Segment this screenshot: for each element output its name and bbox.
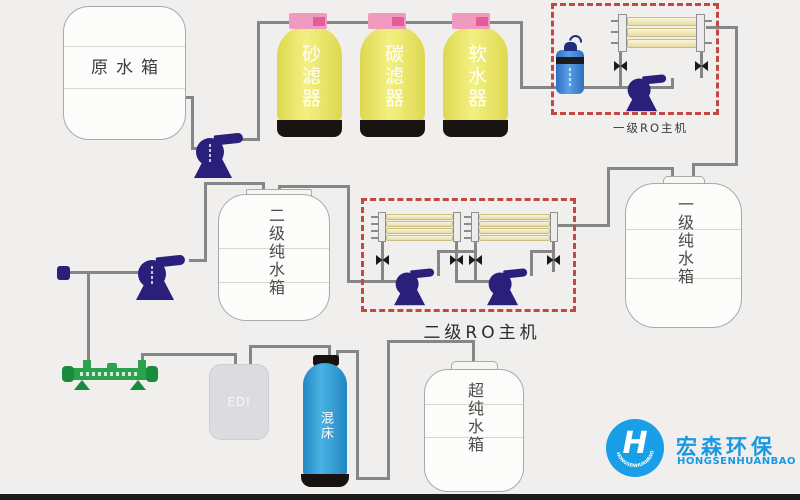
membrane-tick	[371, 223, 378, 225]
ro-membrane-tube	[386, 214, 453, 220]
membrane-manifold	[550, 212, 558, 242]
pump-spout	[503, 268, 528, 279]
membrane-tick	[705, 42, 712, 44]
valve-icon	[449, 251, 464, 263]
membrane-tick	[611, 42, 618, 44]
uv-leg	[74, 380, 90, 390]
logo-text-en: HONGSENHUANBAO	[677, 456, 796, 467]
ultrapure-water-tank: 超纯水箱	[424, 369, 524, 492]
pipe-segment	[387, 340, 390, 480]
pipe-segment	[735, 26, 738, 166]
cartridge-filter	[556, 50, 584, 94]
cartridge-text-mark	[569, 68, 571, 88]
ro-stage1-label: 一级RO主机	[598, 120, 703, 136]
softener-filter-base	[443, 120, 508, 137]
process-flow-diagram: 原水箱 砂滤器 碳滤器 软水器	[0, 0, 800, 500]
pipe-segment	[347, 185, 350, 283]
valve-cap-port	[392, 17, 404, 26]
pipe-segment	[607, 167, 610, 227]
membrane-tick	[611, 20, 618, 22]
ultrapure-tank-label: 超纯水箱	[466, 382, 482, 454]
raw-water-tank: 原水箱	[63, 6, 186, 140]
valve-icon	[546, 251, 561, 263]
ro-membrane-tube	[479, 228, 550, 234]
membrane-manifold	[453, 212, 461, 242]
cartridge-band	[556, 57, 584, 64]
membrane-manifold	[378, 212, 386, 242]
pipe-segment	[204, 182, 207, 262]
ro-membrane-tube	[479, 221, 550, 227]
tank-line	[64, 88, 185, 89]
membrane-tick	[464, 216, 471, 218]
sand-filter-label: 砂滤器	[300, 44, 319, 110]
stage1-tank-label: 一级纯水箱	[676, 196, 692, 286]
valve-icon	[468, 251, 483, 263]
raw-water-tank-label: 原水箱	[64, 53, 185, 78]
sand-filter-base	[277, 120, 342, 137]
stage2-tank-label: 二级纯水箱	[267, 207, 283, 297]
ro-membrane-tube	[479, 214, 550, 220]
pipe-segment	[204, 182, 264, 185]
pump-spout	[214, 133, 244, 146]
valve-cap-port	[313, 17, 325, 26]
membrane-tick	[464, 223, 471, 225]
pipe-segment	[249, 345, 330, 348]
pipe-segment	[64, 271, 142, 274]
ro-stage2-pump-b-icon	[487, 266, 530, 305]
pipe-segment	[356, 350, 359, 480]
pipe-segment	[607, 167, 674, 170]
membrane-tick	[611, 31, 618, 33]
pipe-segment	[694, 163, 738, 166]
pipe-segment	[520, 21, 523, 89]
pipe-segment	[356, 477, 390, 480]
ro-membrane-tube	[479, 235, 550, 241]
uv-end-cap	[62, 366, 74, 382]
softener-filter-label: 软水器	[466, 44, 485, 110]
uv-leg	[130, 380, 146, 390]
carbon-filter-base	[360, 120, 425, 137]
uv-end-cap	[146, 366, 158, 382]
mixed-bed-base	[301, 474, 349, 487]
ro-membrane-tube	[386, 228, 453, 234]
raw-water-pump-icon	[194, 130, 246, 178]
ro-membrane-tube	[386, 221, 453, 227]
bottom-bar	[0, 494, 800, 500]
valve-icon	[375, 251, 390, 263]
ro-membrane-tube	[627, 17, 697, 26]
stage1-pure-water-tank: 一级纯水箱	[625, 183, 742, 328]
stage2-pure-water-tank: 二级纯水箱	[218, 194, 330, 321]
membrane-tick	[371, 237, 378, 239]
pump-text-mark	[209, 144, 211, 164]
company-logo: H HONGSENHUANBAO	[606, 419, 664, 477]
pipe-segment	[141, 353, 237, 356]
pump-spout	[156, 255, 186, 268]
uv-text-mark	[80, 372, 138, 376]
ro-stage1-pump-icon	[626, 72, 669, 111]
mixed-bed-column: 混床	[303, 363, 347, 479]
edi-tank: EDI	[209, 364, 269, 440]
ro-membrane-tube	[627, 28, 697, 37]
pipe-fitting	[57, 266, 70, 280]
valve-icon	[694, 57, 709, 69]
ro-membrane-tube	[386, 235, 453, 241]
pump-spout	[642, 74, 667, 85]
carbon-filter-label: 碳滤器	[383, 44, 402, 110]
pipe-segment	[189, 259, 206, 262]
mixed-bed-label: 混床	[319, 411, 332, 441]
membrane-manifold	[471, 212, 479, 242]
membrane-tick	[371, 216, 378, 218]
membrane-manifold	[696, 14, 705, 52]
svg-text:H: H	[622, 426, 647, 461]
ro-stage2-label: 二级RO主机	[412, 318, 552, 343]
valve-icon	[613, 57, 628, 69]
valve-cap-port	[476, 17, 488, 26]
softener-valve-cap	[452, 13, 490, 29]
transfer-pump-icon	[136, 252, 188, 300]
membrane-tick	[464, 237, 471, 239]
uv-sterilizer	[62, 358, 158, 392]
tank-line	[64, 46, 185, 47]
pipe-segment	[257, 21, 260, 141]
pump-text-mark	[151, 266, 153, 286]
pipe-segment	[87, 271, 90, 368]
membrane-tick	[705, 20, 712, 22]
pipe-segment	[278, 185, 350, 188]
sand-filter-valve-cap	[289, 13, 327, 29]
edi-tank-label: EDI	[210, 395, 268, 409]
pump-spout	[410, 268, 435, 279]
membrane-tick	[464, 230, 471, 232]
ro-stage2-pump-a-icon	[394, 266, 437, 305]
ro-membrane-tube	[627, 39, 697, 48]
logo-mark-icon: H HONGSENHUANBAO	[606, 419, 664, 477]
carbon-filter-valve-cap	[368, 13, 406, 29]
membrane-tick	[371, 230, 378, 232]
membrane-manifold	[618, 14, 627, 52]
